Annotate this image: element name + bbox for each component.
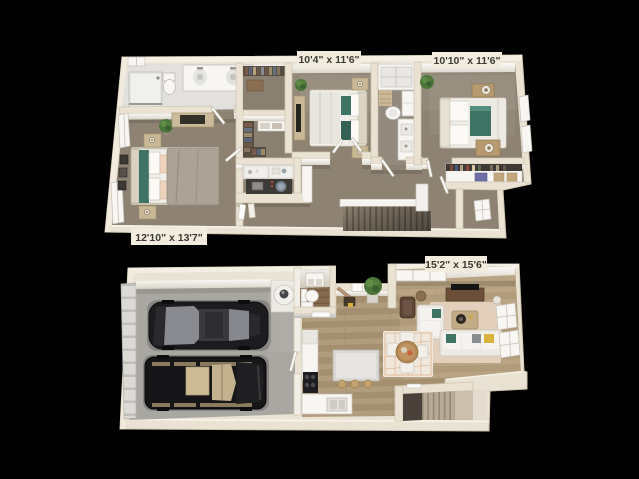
svg-text:10'4" x 11'6": 10'4" x 11'6" (298, 54, 359, 66)
svg-text:15'2" x 15'6": 15'2" x 15'6" (425, 259, 487, 271)
svg-text:12'10" x 13'7": 12'10" x 13'7" (135, 232, 203, 244)
svg-text:10'10" x 11'6": 10'10" x 11'6" (434, 55, 501, 67)
